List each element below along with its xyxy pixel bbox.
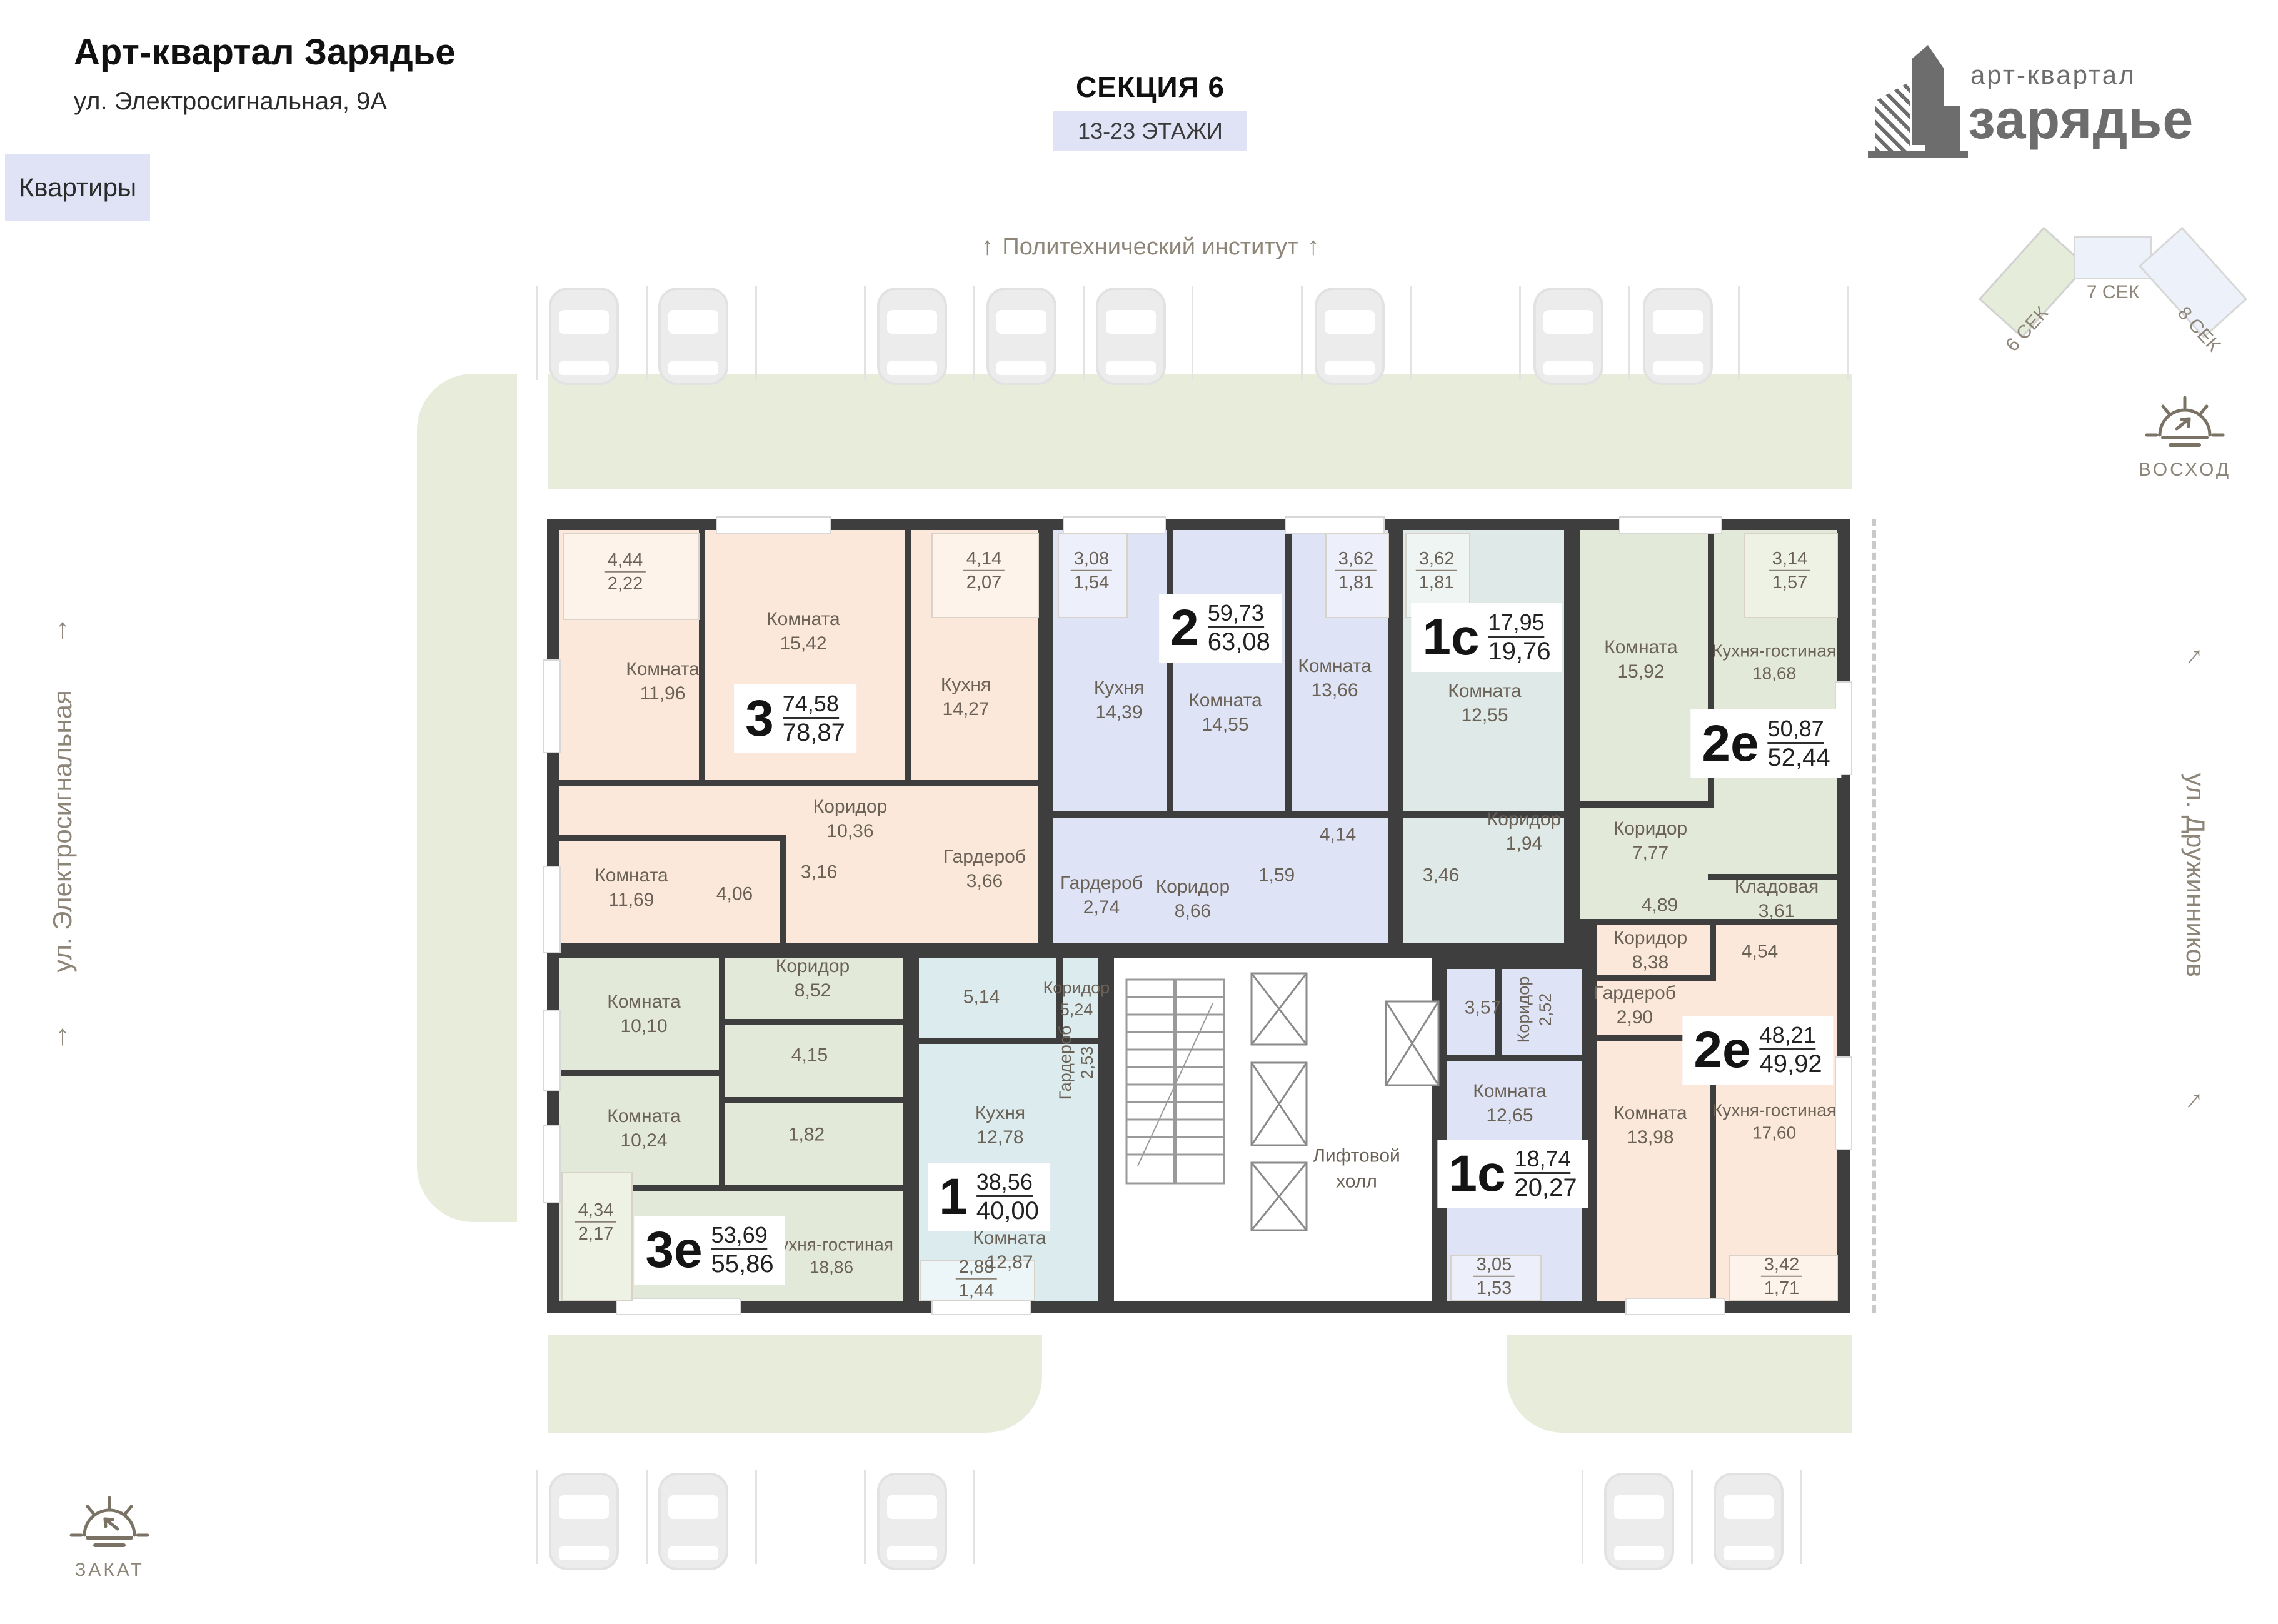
room-label: 4,89 xyxy=(1642,893,1678,918)
window xyxy=(616,1298,741,1315)
balcony-label: 4,342,17 xyxy=(575,1199,616,1246)
apartment-badge-3e[interactable]: 3е53,6955,86 xyxy=(634,1216,785,1285)
street-right-arrow-icon: ↑ xyxy=(2179,638,2212,673)
balcony-label: 3,621,81 xyxy=(1416,548,1457,594)
parking-slot-line xyxy=(973,1470,975,1564)
arrow-up-icon: ↑ xyxy=(1298,233,1328,260)
sunrise-label: ВОСХОД xyxy=(2139,459,2231,481)
interior-wall xyxy=(1447,1055,1582,1061)
logo-hatch-shape xyxy=(1875,81,1910,151)
room-label: Комната10,10 xyxy=(607,990,680,1038)
car-icon xyxy=(877,288,947,385)
room-label: Гардероб2,90 xyxy=(1593,981,1676,1030)
logo-text-bottom: зарядье xyxy=(1968,88,2194,151)
logo-base-shape xyxy=(1868,151,1968,158)
room-label: Комната13,66 xyxy=(1298,654,1371,703)
parking-slot-line xyxy=(1083,286,1085,380)
room-label: Комната11,96 xyxy=(626,657,699,706)
parking-slot-line xyxy=(755,286,757,380)
room-label: Кухня14,39 xyxy=(1094,676,1144,724)
balcony-label: 3,621,81 xyxy=(1335,548,1377,594)
window xyxy=(1625,1298,1725,1315)
room-label: Кухня-гостиная18,86 xyxy=(770,1234,893,1280)
room-label: Коридор8,38 xyxy=(1613,926,1687,975)
room-label: Кухня-гостиная18,68 xyxy=(1712,640,1836,686)
parking-slot-line xyxy=(1847,286,1849,380)
room-label: Коридор8,52 xyxy=(776,954,850,1003)
logo-building-icon xyxy=(1875,45,1963,161)
room-label: Комната14,55 xyxy=(1188,688,1262,737)
section-title: СЕКЦИЯ 6 xyxy=(1006,70,1294,104)
parking-slot-line xyxy=(1738,286,1740,380)
parking-slot-line xyxy=(973,286,975,380)
room-label: Комната13,98 xyxy=(1613,1101,1687,1150)
sunset-icon xyxy=(69,1493,150,1550)
room-label: Комната11,69 xyxy=(595,863,668,912)
car-icon xyxy=(549,1473,619,1570)
room-label: Комната10,24 xyxy=(607,1104,680,1153)
parking-slot-line xyxy=(864,286,866,380)
interior-wall xyxy=(905,530,911,780)
parking-slot-line xyxy=(536,286,538,380)
lawn-left xyxy=(417,374,517,1222)
room-label: Коридор7,77 xyxy=(1613,816,1687,865)
parking-slot-line xyxy=(755,1470,757,1564)
elevator xyxy=(1250,1161,1308,1231)
room-label: 5,14 xyxy=(963,985,1000,1010)
interior-wall xyxy=(1580,801,1714,808)
sunset-label: ЗАКАТ xyxy=(74,1560,144,1581)
parking-slot-line xyxy=(646,1470,648,1564)
street-right-arrow-icon: ↑ xyxy=(2179,1081,2212,1116)
room-label: 3,46 xyxy=(1423,863,1459,888)
sunrise-icon xyxy=(2144,393,2225,450)
site-boundary-dashed-line xyxy=(1872,519,1876,1313)
floors-chip: 13-23 ЭТАЖИ xyxy=(1053,111,1247,151)
apartment-badge-3[interactable]: 374,5878,87 xyxy=(734,684,856,753)
balcony-label: 4,142,07 xyxy=(963,548,1005,594)
room-label: 1,82 xyxy=(788,1123,825,1147)
page-subtitle: ул. Электросигнальная, 9А xyxy=(74,88,387,116)
interior-wall xyxy=(719,1019,903,1025)
car-icon xyxy=(877,1473,947,1570)
logo-text-top: арт-квартал xyxy=(1970,60,2136,90)
parking-slot-line xyxy=(1691,1470,1693,1564)
window xyxy=(1835,1056,1852,1150)
parking-slot-line xyxy=(1519,286,1521,380)
window xyxy=(716,516,831,534)
parking-slot-line xyxy=(1301,286,1303,380)
apartment-badge-2[interactable]: 259,7363,08 xyxy=(1159,594,1282,663)
room-label: 3,57 xyxy=(1465,996,1501,1020)
landmark-top: ↑Политехнический институт↑ xyxy=(881,233,1419,261)
interior-wall xyxy=(780,835,786,943)
room-label: 4,06 xyxy=(716,882,753,906)
room-label: Кладовая3,61 xyxy=(1735,875,1819,923)
staircase xyxy=(1125,978,1225,1185)
room-label: Коридор10,36 xyxy=(813,794,887,843)
window xyxy=(543,659,561,753)
tab-kvartiry[interactable]: Квартиры xyxy=(5,154,150,221)
interior-wall xyxy=(559,1070,719,1076)
car-icon xyxy=(1643,288,1713,385)
room-label: Комната12,65 xyxy=(1473,1079,1546,1128)
room-label: 4,15 xyxy=(791,1043,828,1068)
car-icon xyxy=(1096,288,1166,385)
window xyxy=(1619,516,1722,534)
logo-block-shape xyxy=(1925,106,1960,151)
interior-wall xyxy=(699,530,705,780)
balcony-label: 4,442,22 xyxy=(605,549,646,596)
apartment-badge-2e-top[interactable]: 2е50,8752,44 xyxy=(1690,709,1841,778)
arrow-up-icon: ↑ xyxy=(972,233,1002,260)
car-icon xyxy=(1714,1473,1784,1570)
parking-slot-line xyxy=(864,1470,866,1564)
car-icon xyxy=(1604,1473,1674,1570)
balcony-label: 3,051,53 xyxy=(1473,1253,1515,1300)
interior-wall xyxy=(719,958,725,1185)
room-label: 4,14 xyxy=(1320,823,1356,847)
section-map-7-label: 7 СЕК xyxy=(2087,282,2139,303)
parking-slot-line xyxy=(1582,1470,1583,1564)
parking-slot-line xyxy=(1628,286,1630,380)
parking-slot-line xyxy=(1192,286,1193,380)
room-label: Гардероб2,74 xyxy=(1060,871,1143,920)
balcony-label: 3,421,71 xyxy=(1761,1253,1802,1300)
window xyxy=(1285,516,1385,534)
room-label: Гардероб3,66 xyxy=(943,845,1026,893)
room-label: Гардероб2,53 xyxy=(1055,1026,1098,1100)
interior-wall xyxy=(1710,925,1716,981)
section-map-7[interactable] xyxy=(2074,236,2152,279)
page-title: Арт-квартал Зарядье xyxy=(74,31,456,73)
parking-slot-line xyxy=(1800,1470,1802,1564)
apartment-badge-1[interactable]: 138,5640,00 xyxy=(928,1163,1050,1231)
parking-slot-line xyxy=(1410,286,1412,380)
room-label: Кухня14,27 xyxy=(941,673,991,721)
interior-wall xyxy=(559,780,1038,786)
room-label: Комната15,92 xyxy=(1604,635,1677,684)
room-label: Комната15,42 xyxy=(766,607,840,656)
interior-wall xyxy=(1285,530,1292,811)
apartment-badge-2e-bottom[interactable]: 2е48,2149,92 xyxy=(1682,1016,1833,1085)
elevator xyxy=(1385,1000,1440,1086)
room-label: Комната12,55 xyxy=(1448,679,1521,728)
car-icon xyxy=(658,288,728,385)
landmark-top-label: Политехнический институт xyxy=(1002,234,1298,260)
room-label: Коридор1,94 xyxy=(1487,807,1561,856)
street-left-arrow-icon: ↑ xyxy=(56,611,70,645)
window xyxy=(543,1010,561,1091)
car-icon xyxy=(1533,288,1603,385)
interior-wall xyxy=(1167,530,1173,811)
window xyxy=(1063,516,1166,534)
lawn-top xyxy=(548,374,1852,489)
balcony-label: 3,141,57 xyxy=(1769,548,1810,594)
apartment-badge-1s-top[interactable]: 1с17,9519,76 xyxy=(1411,603,1562,672)
elevator xyxy=(1250,1061,1308,1146)
car-icon xyxy=(549,288,619,385)
room-label: 4,54 xyxy=(1742,940,1778,964)
room-label: 1,59 xyxy=(1258,863,1295,888)
parking-slot-line xyxy=(536,1470,538,1564)
car-icon xyxy=(1315,288,1385,385)
elevator xyxy=(1250,972,1308,1046)
interior-wall xyxy=(1053,811,1388,818)
street-left-label: ул. Электросигнальная xyxy=(48,690,78,972)
room-label: Кухня12,78 xyxy=(975,1101,1025,1150)
window xyxy=(543,1125,561,1203)
lawn-bottom-right xyxy=(1507,1335,1852,1433)
room-label: Коридор5,24 xyxy=(1043,977,1110,1021)
parking-slot-line xyxy=(646,286,648,380)
window xyxy=(543,866,561,953)
balcony-label: 2,881,44 xyxy=(956,1256,997,1303)
apartment-badge-1s-bottom[interactable]: 1с18,7420,27 xyxy=(1437,1140,1588,1208)
interior-wall xyxy=(719,1097,903,1103)
car-icon xyxy=(986,288,1056,385)
elevator-hall-label: Лифтовой холл xyxy=(1300,1144,1413,1195)
lawn-bottom-left xyxy=(548,1335,1042,1433)
street-left-arrow-icon: ↑ xyxy=(56,1018,70,1051)
interior-wall xyxy=(559,835,780,841)
room-label: 3,16 xyxy=(801,860,837,885)
room-label: Кухня-гостиная17,60 xyxy=(1712,1100,1836,1145)
car-icon xyxy=(658,1473,728,1570)
room-label: Коридор2,52 xyxy=(1513,976,1557,1043)
balcony-label: 3,081,54 xyxy=(1071,548,1112,594)
room-label: Коридор8,66 xyxy=(1156,875,1230,923)
street-right-label: ул. Дружинников xyxy=(2180,773,2210,978)
